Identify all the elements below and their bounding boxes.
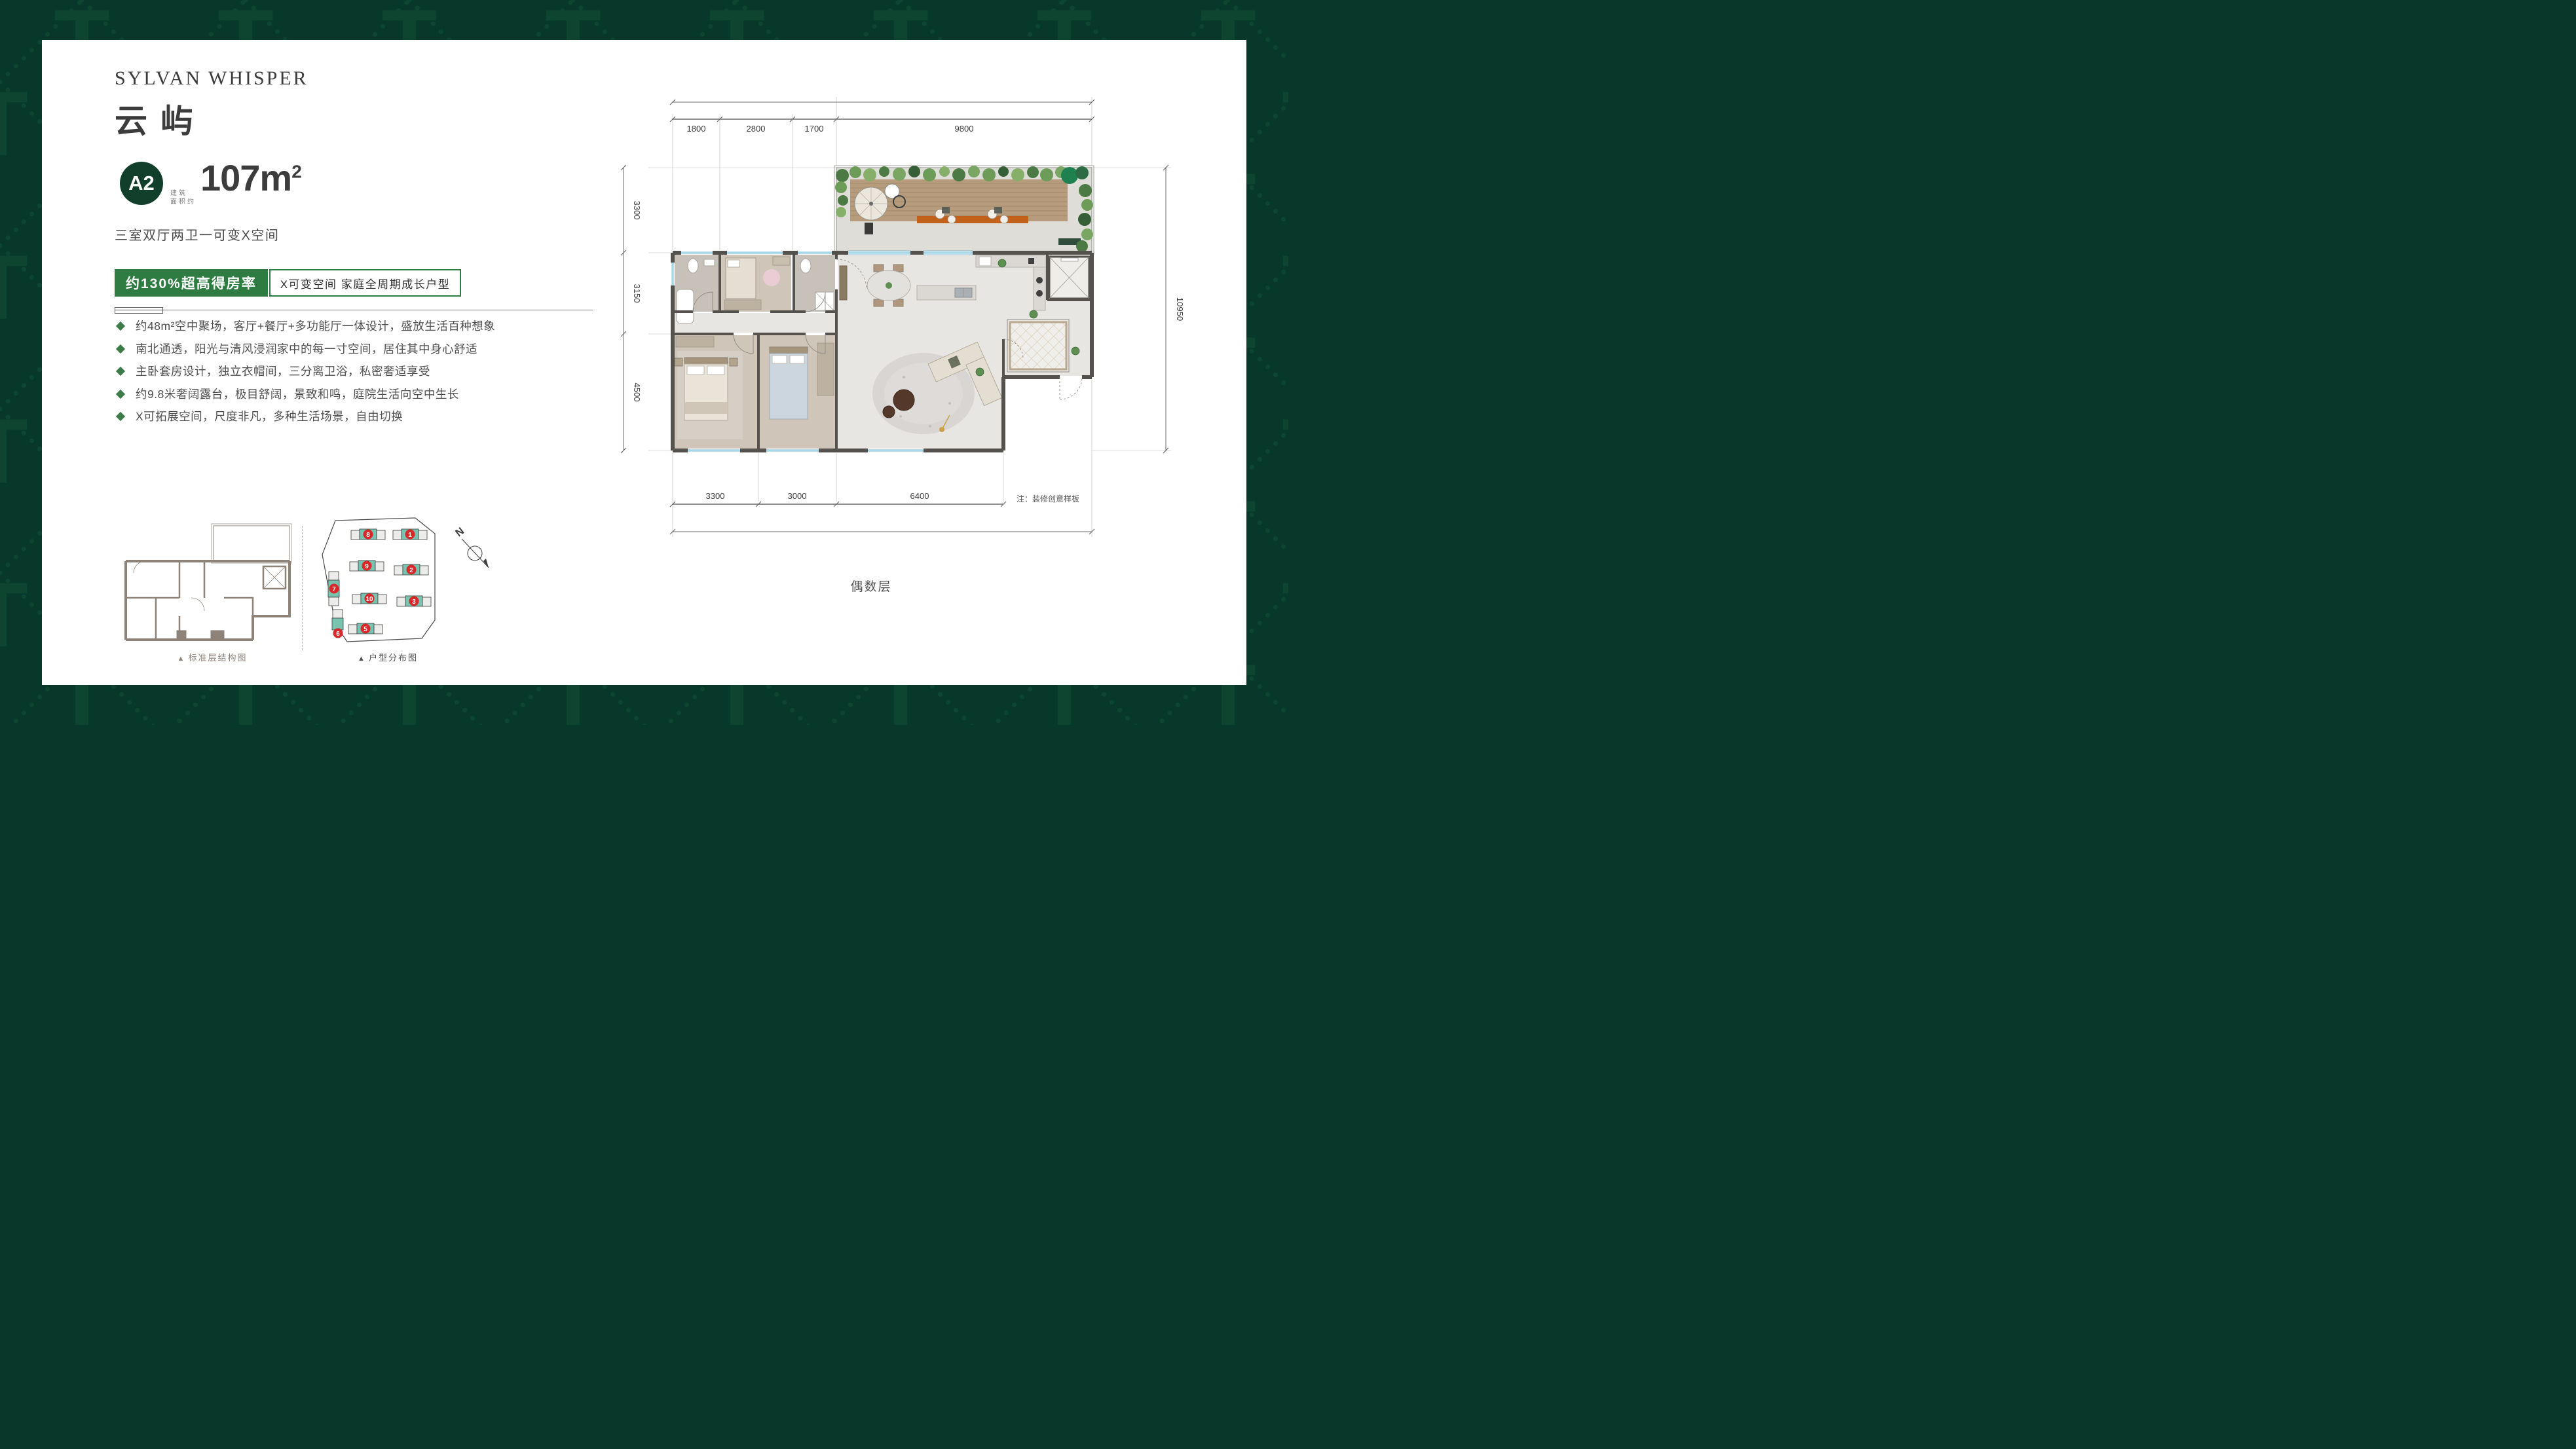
elevator [1049,257,1089,299]
project-title-cn: 云屿 [115,95,206,142]
divider-line [115,310,593,310]
feature-item: 约48m²空中聚场，客厅+餐厅+多功能厅一体设计，盛放生活百种想象 [115,320,612,333]
svg-text:1800: 1800 [687,124,706,134]
triangle-marker-icon: ▲ [177,655,186,663]
bedroom2-wardrobe [817,343,834,395]
svg-text:3: 3 [412,598,416,606]
svg-text:5: 5 [364,626,367,633]
svg-text:4500: 4500 [632,383,642,402]
project-title-en: SYLVAN WHISPER [115,67,308,90]
unit-distribution-diagram: 8 1 9 2 10 3 7 6 5 N [317,515,513,654]
unit-badge: A2 [120,162,163,205]
feature-list: 约48m²空中聚场，客厅+餐厅+多功能厅一体设计，盛放生活百种想象 南北通透，阳… [115,320,612,433]
area-note-line2: 面积约 [170,198,196,206]
svg-text:2: 2 [409,567,413,574]
terrace-mat [917,216,1028,223]
svg-text:3300: 3300 [632,201,642,220]
standard-floor-structure-diagram [114,518,304,649]
triangle-marker-icon: ▲ [358,655,366,663]
sink [704,259,715,266]
kid-desk [773,257,790,265]
diagram-separator [302,526,303,650]
nightstand [675,358,682,366]
unit-layout-description: 三室双厅两卫一可变X空间 [115,225,279,244]
table-plant [886,282,892,289]
kid-wardrobe [724,300,761,310]
console-table [840,266,847,300]
bathtub [677,289,694,323]
diamond-bullet-icon [116,367,125,376]
banner-subtext: X可变空间 家庭全周期成长户型 [269,269,462,297]
svg-text:6: 6 [336,631,340,638]
banner-highlight: 约130%超高得房率 [115,269,268,297]
svg-text:1: 1 [408,532,412,539]
dining-chair [874,265,884,272]
svg-text:1700: 1700 [805,124,824,134]
distribution-diagram-caption: ▲户型分布图 [322,651,453,663]
feature-item: X可拓展空间，尺度非凡，多种生活场景，自由切换 [115,411,612,423]
hallway-floor [674,313,835,333]
area-note: 建筑 面积约 [170,189,196,206]
diamond-bullet-icon [116,321,125,331]
svg-text:6400: 6400 [910,491,929,501]
coffee-table [893,390,914,411]
entry-foyer [1007,320,1069,372]
area-note-line1: 建筑 [170,189,196,198]
diamond-bullet-icon [116,412,125,421]
site-buildings: 8 1 9 2 10 3 7 6 5 [328,529,431,638]
svg-text:3300: 3300 [706,491,725,501]
content-card: SYLVAN WHISPER 云屿 A2 建筑 面积约 107m2 三室双厅两卫… [42,40,1246,685]
svg-text:7: 7 [332,586,336,593]
svg-text:8: 8 [366,532,370,539]
compass-icon: N [453,526,489,568]
svg-text:9800: 9800 [955,124,974,134]
svg-text:10: 10 [365,596,373,603]
terrace [834,166,1094,255]
toilet [800,259,811,273]
decor-note: 注：装修创意样板 [1017,494,1079,504]
poster-page: T T T SYLVAN WHISPER 云屿 A2 建筑 面积约 107m2 … [0,0,1288,725]
area-superscript: 2 [291,161,301,181]
svg-text:3150: 3150 [632,284,642,303]
diamond-bullet-icon [116,389,125,398]
svg-text:9: 9 [365,563,369,570]
master-wardrobe [676,337,714,347]
diamond-bullet-icon [116,344,125,353]
svg-text:3000: 3000 [788,491,807,501]
dining-chair [874,299,884,306]
coffee-table [883,406,895,418]
svg-text:N: N [453,526,466,540]
floor-label: 偶数层 [850,579,891,594]
hob-counter [1034,267,1045,310]
nightstand [730,358,737,366]
pink-rug [763,269,780,286]
svg-text:10950: 10950 [1175,297,1185,321]
selling-point-banner: 约130%超高得房率 X可变空间 家庭全周期成长户型 [115,269,461,297]
section-divider [115,307,593,313]
headboard [684,358,728,364]
floorplan: 1800 2800 1700 9800 3300 3150 4500 10950… [609,69,1205,600]
feature-item: 主卧套房设计，独立衣帽间，三分离卫浴，私密奢适享受 [115,365,612,378]
unit-area: 107m2 [200,156,301,199]
svg-text:2800: 2800 [747,124,766,134]
feature-item: 约9.8米奢阔露台，极目舒阔，景致和鸣，庭院生活向空中生长 [115,388,612,401]
divider-end-marker [115,307,163,314]
toilet [688,259,698,273]
feature-item: 南北通透，阳光与清风浸润家中的每一寸空间，居住其中身心舒适 [115,343,612,356]
structure-diagram-caption: ▲标准层结构图 [121,651,304,663]
